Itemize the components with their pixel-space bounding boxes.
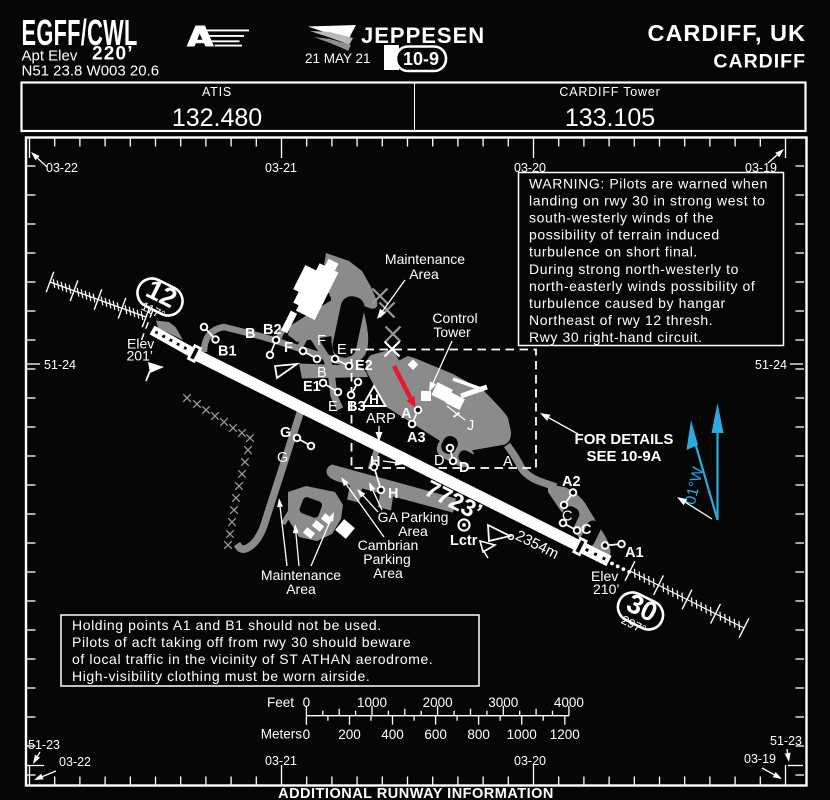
svg-text:F: F — [284, 340, 293, 356]
svg-text:1000: 1000 — [357, 695, 387, 710]
svg-text:ADDITIONAL RUNWAY INFORMATION: ADDITIONAL RUNWAY INFORMATION — [278, 786, 554, 800]
svg-text:G: G — [277, 450, 288, 466]
svg-text:D: D — [434, 453, 444, 469]
svg-text:Area: Area — [286, 581, 316, 597]
svg-text:E: E — [328, 399, 338, 415]
svg-text:B2: B2 — [263, 322, 282, 338]
svg-text:2000: 2000 — [423, 695, 453, 710]
svg-text:03-22: 03-22 — [59, 755, 91, 769]
svg-text:210’: 210’ — [593, 581, 619, 597]
svg-text:51-23: 51-23 — [28, 738, 60, 752]
svg-text:03-20: 03-20 — [514, 754, 546, 768]
svg-text:FOR DETAILS: FOR DETAILS — [575, 431, 674, 448]
svg-text:C: C — [581, 522, 592, 538]
svg-text:F: F — [317, 333, 326, 349]
svg-text:200: 200 — [338, 727, 361, 742]
svg-text:SEE 10-9A: SEE 10-9A — [586, 448, 661, 465]
svg-text:CARDIFF: CARDIFF — [713, 51, 806, 73]
svg-text:1000: 1000 — [507, 727, 537, 742]
svg-text:400: 400 — [381, 727, 404, 742]
svg-text:JEPPESEN: JEPPESEN — [361, 23, 485, 48]
svg-text:Area: Area — [373, 565, 403, 581]
svg-text:B1: B1 — [218, 344, 237, 360]
svg-text:E2: E2 — [355, 358, 373, 374]
svg-text:800: 800 — [467, 727, 490, 742]
svg-text:Lctr: Lctr — [450, 533, 478, 549]
svg-text:A: A — [503, 454, 513, 470]
svg-text:N51 23.8 W003 20.6: N51 23.8 W003 20.6 — [22, 63, 160, 80]
svg-text:E: E — [337, 342, 347, 358]
svg-text:CARDIFF, UK: CARDIFF, UK — [647, 20, 806, 46]
svg-text:51-24: 51-24 — [755, 358, 787, 372]
svg-text:D: D — [459, 460, 469, 476]
svg-text:10-9: 10-9 — [403, 49, 439, 69]
svg-text:B: B — [245, 326, 255, 342]
svg-text:Tower: Tower — [433, 324, 471, 340]
svg-text:03-22: 03-22 — [46, 161, 78, 175]
svg-text:ATIS: ATIS — [202, 85, 232, 99]
svg-text:600: 600 — [424, 727, 447, 742]
svg-text:A: A — [401, 406, 412, 422]
svg-text:C: C — [562, 509, 572, 525]
svg-text:Meters: Meters — [261, 727, 303, 742]
svg-text:A2: A2 — [562, 474, 581, 490]
svg-text:Maintenance: Maintenance — [385, 251, 465, 267]
svg-text:G: G — [280, 425, 291, 441]
svg-text:0: 0 — [303, 695, 311, 710]
svg-text:H: H — [388, 486, 398, 502]
svg-text:H: H — [370, 454, 380, 470]
svg-text:CARDIFF Tower: CARDIFF Tower — [559, 85, 660, 99]
svg-text:133.105: 133.105 — [565, 104, 655, 132]
svg-text:03-21: 03-21 — [265, 161, 297, 175]
svg-text:H: H — [369, 392, 379, 407]
svg-text:132.480: 132.480 — [172, 104, 262, 132]
svg-text:51-24: 51-24 — [44, 358, 76, 372]
svg-text:21 MAY 21: 21 MAY 21 — [305, 51, 371, 66]
svg-text:A3: A3 — [407, 430, 426, 446]
svg-text:3000: 3000 — [488, 695, 518, 710]
svg-text:E1: E1 — [303, 379, 321, 395]
svg-text:B3: B3 — [347, 399, 366, 415]
svg-text:1200: 1200 — [550, 727, 580, 742]
svg-text:Area: Area — [409, 266, 439, 282]
svg-text:A1: A1 — [625, 545, 644, 561]
svg-text:4000: 4000 — [554, 695, 584, 710]
svg-text:Feet: Feet — [267, 695, 294, 710]
svg-text:J: J — [467, 418, 474, 434]
svg-text:0: 0 — [303, 727, 311, 742]
svg-text:ARP: ARP — [366, 411, 396, 427]
svg-text:51-23: 51-23 — [770, 734, 802, 748]
svg-text:03-21: 03-21 — [265, 754, 297, 768]
svg-text:201’: 201’ — [127, 348, 153, 364]
svg-text:03-19: 03-19 — [744, 752, 776, 766]
svg-text:220’: 220’ — [92, 44, 134, 65]
